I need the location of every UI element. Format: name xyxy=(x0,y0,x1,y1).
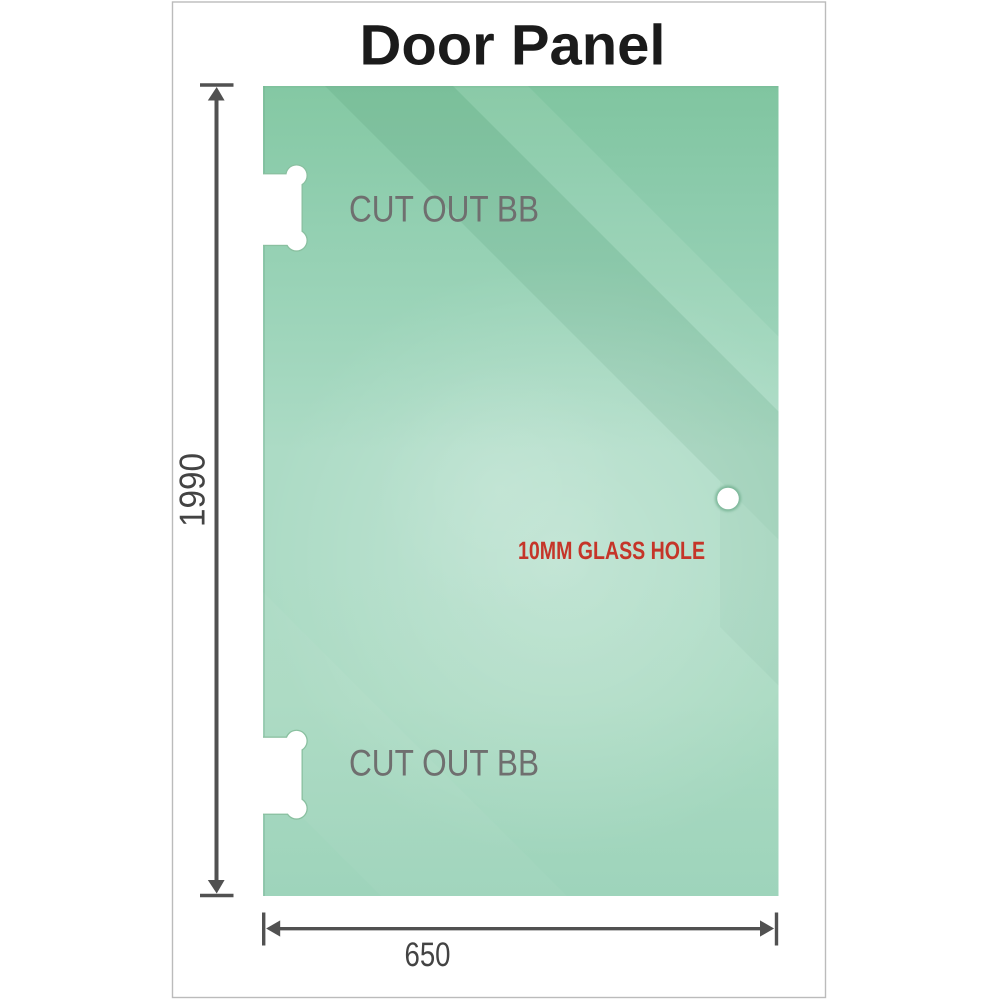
svg-text:Door Panel: Door Panel xyxy=(360,14,666,78)
svg-text:1990: 1990 xyxy=(172,453,213,527)
svg-text:CUT OUT BB: CUT OUT BB xyxy=(349,743,539,784)
svg-text:CUT OUT BB: CUT OUT BB xyxy=(349,189,539,230)
svg-text:650: 650 xyxy=(405,936,451,974)
svg-text:10MM GLASS HOLE: 10MM GLASS HOLE xyxy=(518,537,705,565)
